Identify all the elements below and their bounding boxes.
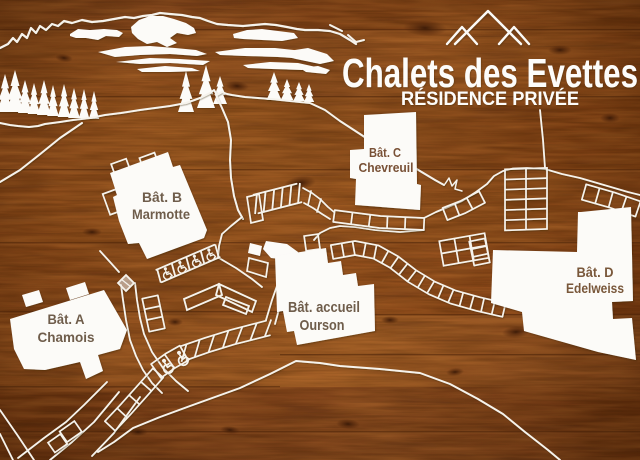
svg-text:Edelweiss: Edelweiss — [566, 280, 624, 296]
svg-text:Bât. C: Bât. C — [369, 145, 402, 160]
svg-text:Chamois: Chamois — [38, 329, 95, 345]
svg-text:RÉSIDENCE PRIVÉE: RÉSIDENCE PRIVÉE — [401, 87, 579, 110]
svg-text:Bât. B: Bât. B — [142, 189, 182, 205]
svg-text:Bât. D: Bât. D — [577, 264, 614, 280]
svg-text:Ourson: Ourson — [300, 317, 345, 334]
svg-text:Marmotte: Marmotte — [132, 206, 190, 222]
svg-text:Chevreuil: Chevreuil — [359, 160, 414, 175]
svg-text:Bât. A: Bât. A — [48, 311, 85, 327]
svg-text:Bât. accueil: Bât. accueil — [288, 299, 360, 316]
